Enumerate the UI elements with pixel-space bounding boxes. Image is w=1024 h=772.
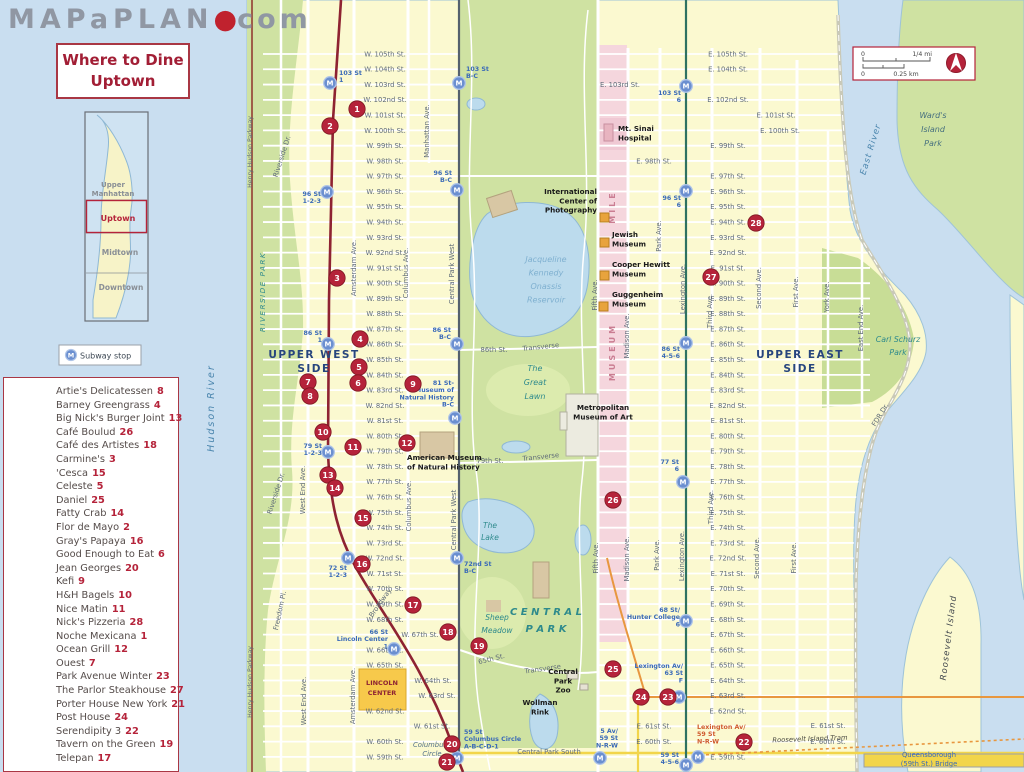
site-logo: MAPaPLAN●com [8,4,312,35]
map-title-line2: Uptown [60,71,186,92]
svg-text:W. 63rd St.: W. 63rd St. [418,692,455,700]
street-label: E. 100th St. [760,127,800,135]
svg-text:W. 95th St.: W. 95th St. [366,203,403,211]
landmark-label: MetropolitanMuseum of Art [573,403,633,421]
turtle-pond [502,441,530,453]
svg-text:Kennedy: Kennedy [529,269,564,278]
svg-text:20: 20 [446,740,458,749]
svg-text:(59th St.) Bridge: (59th St.) Bridge [901,760,958,768]
svg-text:1: 1 [339,77,343,84]
restaurant-item: Post House24 [56,711,178,725]
svg-text:B-C: B-C [442,402,454,409]
street-label: W. 64th St. [414,677,451,685]
svg-text:M: M [345,555,352,563]
svg-text:Museum: Museum [612,269,646,278]
restaurant-item: Tavern on the Green19 [56,738,178,752]
svg-text:Third Ave.: Third Ave. [707,490,715,525]
svg-text:21: 21 [441,758,453,767]
svg-text:W. 60th St.: W. 60th St. [366,738,403,746]
street-label: W. 75th St. [366,509,403,517]
svg-text:Hospital: Hospital [618,133,652,142]
svg-text:Lincoln Center: Lincoln Center [337,636,389,643]
street-label: W. 102nd St. [363,96,406,104]
street-label: W. 72nd St. [366,555,405,563]
subway-legend-label: Subway stop [80,352,131,361]
svg-text:M: M [680,479,687,487]
map-label: MUSEUM [608,323,617,381]
restaurant-marker: 27 [703,269,719,285]
svg-text:E. 85th St.: E. 85th St. [710,356,746,364]
svg-text:W. 71st St.: W. 71st St. [367,570,403,578]
restaurant-marker: 19 [471,638,487,654]
svg-text:B-C: B-C [440,177,452,184]
subway-stop-label: 96 St1-2-3 [302,191,321,205]
svg-text:M: M [454,187,461,195]
street-label: E. 95th St. [710,203,746,211]
street-label: E. 77th St. [710,478,746,486]
map-label: SIDE [783,363,816,375]
svg-text:59 St: 59 St [599,735,618,742]
restaurant-marker: 18 [440,624,456,640]
svg-text:E. 104th St.: E. 104th St. [708,66,748,74]
svg-text:Madison Ave.: Madison Ave. [623,313,631,358]
svg-text:American Museum: American Museum [407,453,482,462]
svg-text:M: M [68,352,74,360]
street-label: E. 101st St. [756,112,795,120]
restaurant-item: Good Enough to Eat6 [56,548,178,562]
svg-text:B-C: B-C [439,334,451,341]
logo-dot: ● [214,4,238,35]
svg-text:E. 86th St.: E. 86th St. [710,341,746,349]
svg-text:23: 23 [662,693,673,702]
street-label: E. 84th St. [710,371,746,379]
svg-text:28: 28 [750,219,762,228]
svg-text:25: 25 [607,665,619,674]
svg-text:Lawn: Lawn [525,392,546,401]
street-label: W. 74th St. [366,524,403,532]
subway-stop-label: 59 St4-5-6 [660,752,679,766]
svg-text:96 St: 96 St [433,170,452,177]
subway-stop-label: 5 Av/59 StN-R-W [596,728,619,749]
street-label: E. 105th St. [708,50,748,58]
svg-text:Hudson River: Hudson River [206,364,217,452]
restaurant-item: Celeste5 [56,480,178,494]
compass-icon [947,53,966,73]
svg-text:A-B-C-D-1: A-B-C-D-1 [464,743,499,750]
svg-text:E. 81st St.: E. 81st St. [711,417,746,425]
svg-text:Park: Park [924,139,942,148]
svg-text:E. 99th St.: E. 99th St. [710,142,746,150]
svg-text:6: 6 [675,466,680,473]
map-label: RIVERSIDE PARK [258,252,267,332]
street-label: W. 99th St. [366,142,403,150]
restaurant-marker: 16 [354,556,370,572]
map-label: York Ave. [823,282,831,314]
svg-text:18: 18 [442,628,454,637]
svg-text:Great: Great [524,378,547,387]
svg-text:E. 63rd St.: E. 63rd St. [710,692,746,700]
street-label: W. 92nd St. [366,249,405,257]
svg-text:66 St: 66 St [369,629,388,636]
restaurant-marker: 28 [748,215,764,231]
svg-text:UPPER EAST: UPPER EAST [756,349,844,361]
svg-text:Center of: Center of [559,196,598,205]
map-label: Columbus Ave. [402,248,410,299]
svg-text:59 St: 59 St [464,729,483,736]
map-label: Park Ave. [653,539,661,570]
restaurant-item: Ouest7 [56,657,178,671]
map-label: West End Ave. [299,466,307,515]
street-label: W. 105th St. [364,50,406,58]
street-label: E. 64th St. [710,677,746,685]
svg-text:Third Ave.: Third Ave. [706,294,714,329]
svg-text:Second Ave.: Second Ave. [755,267,763,309]
svg-text:F: F [679,677,683,684]
map-label: E. 61st St. [811,722,846,730]
svg-text:Jewish: Jewish [611,230,638,239]
restaurant-item: Serendipity 322 [56,725,178,739]
restaurant-item: Fatty Crab14 [56,507,178,521]
svg-text:E. 76th St.: E. 76th St. [710,494,746,502]
street-label: E. 72nd St. [709,555,746,563]
street-label: E. 65th St. [710,662,746,670]
hospital-icon [604,124,613,141]
svg-text:E. 70th St.: E. 70th St. [710,585,746,593]
street-label: E. 86th St. [710,341,746,349]
restaurant-item: Porter House New York21 [56,698,178,712]
street-label: E. 88th St. [710,310,746,318]
restaurant-marker: 25 [605,661,621,677]
svg-text:MUSEUM: MUSEUM [608,323,617,381]
restaurant-list: Artie's Delicatessen8Barney Greengrass4B… [3,377,179,772]
svg-text:Museum of: Museum of [415,387,454,394]
restaurant-marker: 17 [405,597,421,613]
svg-text:6: 6 [355,379,361,388]
svg-text:79 St: 79 St [303,443,322,450]
street-label: E. 94th St. [710,218,746,226]
svg-text:9: 9 [410,380,416,389]
svg-text:W. 97th St.: W. 97th St. [366,173,403,181]
svg-text:N-R-W: N-R-W [697,738,719,745]
map-label: LINCOLN [366,679,398,687]
svg-text:W. 81st St.: W. 81st St. [367,417,403,425]
svg-text:Amsterdam Ave.: Amsterdam Ave. [349,668,357,724]
street-label: W. 79th St. [366,448,403,456]
svg-text:4-5-6: 4-5-6 [662,353,681,360]
svg-text:W. 84th St.: W. 84th St. [366,371,403,379]
svg-text:Guggenheim: Guggenheim [612,290,663,299]
street-label: E. 78th St. [710,463,746,471]
svg-text:Central Park West: Central Park West [450,489,458,550]
svg-text:M: M [597,755,604,763]
subway-legend: M Subway stop [59,345,141,365]
svg-text:West End Ave.: West End Ave. [299,466,307,515]
svg-text:B-C: B-C [464,568,476,575]
svg-text:E. 72nd St.: E. 72nd St. [709,555,746,563]
street-label: E. 74th St. [710,524,746,532]
svg-text:W. 76th St.: W. 76th St. [366,494,403,502]
svg-text:E. 96th St.: E. 96th St. [710,188,746,196]
street-label: E. 68th St. [710,616,746,624]
svg-text:W. 74th St.: W. 74th St. [366,524,403,532]
map-label: Third Ave. [707,490,715,525]
landmark-label: American Museumof Natural History [407,453,482,471]
street-label: W. 89th St. [366,295,403,303]
map-label: Second Ave. [753,537,761,579]
svg-text:59 St: 59 St [697,731,716,738]
street-label: E. 93rd St. [710,234,746,242]
map-label: Henry Hudson Parkway [247,116,254,188]
svg-text:E. 61st St.: E. 61st St. [637,723,672,731]
inset-uptown: Uptown [101,214,136,223]
svg-text:M: M [325,341,332,349]
svg-text:B-C: B-C [466,73,478,80]
svg-text:17: 17 [407,601,418,610]
svg-text:W. 99th St.: W. 99th St. [366,142,403,150]
street-label: E. 81st St. [711,417,746,425]
svg-text:5: 5 [356,363,362,372]
svg-text:E. 95th St.: E. 95th St. [710,203,746,211]
svg-text:72nd St: 72nd St [464,561,492,568]
street-label: W. 73rd St. [366,539,403,547]
svg-text:Columbus Ave.: Columbus Ave. [402,248,410,299]
svg-text:M: M [456,80,463,88]
svg-text:M: M [683,762,690,770]
svg-text:Photography: Photography [545,206,597,215]
svg-text:Wollman: Wollman [523,698,558,707]
street-label: E. 70th St. [710,585,746,593]
svg-text:5 Av/: 5 Av/ [600,728,618,735]
map-label: Madison Ave. [623,313,631,358]
restaurant-marker: 1 [349,101,365,117]
svg-text:M: M [324,189,331,197]
restaurant-marker: 21 [439,754,455,770]
museum-icon [599,302,608,311]
restaurant-marker: 9 [405,376,421,392]
svg-text:E. 84th St.: E. 84th St. [710,371,746,379]
svg-text:68 St/: 68 St/ [659,607,681,614]
map-label: First Ave. [792,276,800,307]
svg-text:Cooper Hewitt: Cooper Hewitt [612,260,671,269]
svg-text:The: The [483,521,497,530]
svg-text:Lexington Av/: Lexington Av/ [634,663,683,670]
svg-text:SIDE: SIDE [783,363,816,375]
svg-text:E. 88th St.: E. 88th St. [710,310,746,318]
svg-text:E. 98th St.: E. 98th St. [636,157,672,165]
inset-upper-manhattan: Upper [101,181,125,189]
street-label: W. 60th St. [366,738,403,746]
svg-text:Madison Ave.: Madison Ave. [623,536,631,581]
svg-text:3: 3 [334,274,340,283]
street-label: W. 97th St. [366,173,403,181]
svg-text:86 St: 86 St [303,330,322,337]
subway-stop-label: 79 St1-2-3 [303,443,322,457]
svg-text:11: 11 [347,443,359,452]
svg-text:Ward's: Ward's [919,111,946,120]
svg-text:CENTER: CENTER [368,689,397,697]
map-label: Lexington Ave. [679,264,687,314]
svg-text:E. 80th St.: E. 80th St. [710,432,746,440]
landmark-label: Mt. SinaiHospital [618,124,654,142]
svg-text:W. 82nd St.: W. 82nd St. [366,402,405,410]
svg-text:E. 66th St.: E. 66th St. [710,646,746,654]
street-label: W. 82nd St. [366,402,405,410]
svg-text:Museum of Art: Museum of Art [573,412,633,421]
svg-text:W. 105th St.: W. 105th St. [364,50,406,58]
restaurant-marker: 23 [660,689,676,705]
svg-text:W. 61st St.: W. 61st St. [414,723,450,731]
street-label: E. 87th St. [710,325,746,333]
svg-text:Zoo: Zoo [555,686,570,695]
svg-text:Fifth Ave.: Fifth Ave. [591,279,599,310]
svg-text:RIVERSIDE PARK: RIVERSIDE PARK [258,252,267,332]
svg-text:The: The [528,364,543,373]
street-label: E. 59th St. [710,753,746,761]
svg-text:1-2-3: 1-2-3 [303,198,321,205]
restaurant-item: Ocean Grill12 [56,643,178,657]
svg-text:1: 1 [354,105,360,114]
scale-km-label: 0.25 km [893,71,918,78]
street-label: E. 66th St. [710,646,746,654]
svg-text:W. 67th St.: W. 67th St. [401,631,438,639]
street-label: W. 93rd St. [366,234,403,242]
restaurant-item: Nick's Pizzeria28 [56,616,178,630]
restaurant-item: Café Boulud26 [56,426,178,440]
scale-mi-zero: 0 [861,51,865,58]
restaurant-item: Café des Artistes18 [56,439,178,453]
street-label: W. 65th St. [366,662,403,670]
logo-main: MAPaPLAN [8,4,214,35]
street-label: W. 61st St. [414,723,450,731]
street-label: W. 94th St. [366,218,403,226]
svg-text:W. 87th St.: W. 87th St. [366,325,403,333]
svg-text:Amsterdam Ave.: Amsterdam Ave. [350,240,358,296]
street-label: E. 76th St. [710,494,746,502]
inset-overview-map: Upper Manhattan Uptown Midtown Downtown [85,112,148,321]
restaurant-marker: 15 [355,510,371,526]
svg-text:E. 59th St.: E. 59th St. [710,753,746,761]
svg-text:E. 83rd St.: E. 83rd St. [710,387,746,395]
svg-text:103 St: 103 St [339,70,362,77]
svg-text:W. 78th St.: W. 78th St. [366,463,403,471]
svg-text:W. 72nd St.: W. 72nd St. [366,555,405,563]
map-label: Lexington Ave. [678,531,686,581]
street-label: W. 96th St. [366,188,403,196]
svg-text:Lexington Ave.: Lexington Ave. [678,531,686,581]
conservatory-water [575,525,591,555]
map-label: First Ave. [790,542,798,573]
svg-text:E. 77th St.: E. 77th St. [710,478,746,486]
svg-text:W. 79th St.: W. 79th St. [366,448,403,456]
svg-text:E. 101st St.: E. 101st St. [756,112,795,120]
svg-text:E. 103rd St.: E. 103rd St. [600,81,640,89]
street-label: W. 67th St. [401,631,438,639]
map-label: Queensborough [902,751,956,759]
street-label: W. 78th St. [366,463,403,471]
street-label: E. 69th St. [710,600,746,608]
svg-text:59 St: 59 St [660,752,679,759]
svg-text:Henry Hudson Parkway: Henry Hudson Parkway [247,116,254,188]
street-label: W. 104th St. [364,66,406,74]
street-label: E. 67th St. [710,631,746,639]
map-label: Amsterdam Ave. [349,668,357,724]
svg-text:W. 102nd St.: W. 102nd St. [363,96,406,104]
svg-text:24: 24 [635,693,647,702]
restaurant-item: Jean Georges20 [56,562,178,576]
map-label: Madison Ave. [623,536,631,581]
subway-stop-label: 72 St1-2-3 [328,565,347,579]
svg-text:N-R-W: N-R-W [596,742,618,749]
map-label: 86th St. [481,346,508,354]
svg-text:22: 22 [738,738,749,747]
svg-text:M: M [454,341,461,349]
svg-text:W. 94th St.: W. 94th St. [366,218,403,226]
svg-text:12: 12 [401,439,412,448]
svg-text:M: M [391,646,398,654]
svg-text:M: M [683,188,690,196]
svg-text:East End Ave.: East End Ave. [857,305,865,352]
svg-text:Natural History: Natural History [400,394,454,401]
svg-text:LINCOLN: LINCOLN [366,679,398,687]
street-label: E. 96th St. [710,188,746,196]
restaurant-marker: 12 [399,435,415,451]
street-label: E. 97th St. [710,173,746,181]
svg-text:W. 93rd St.: W. 93rd St. [366,234,403,242]
svg-text:of Natural History: of Natural History [407,462,480,471]
svg-text:Rink: Rink [531,707,549,716]
svg-text:86 St: 86 St [661,346,680,353]
street-label: E. 73rd St. [710,539,746,547]
svg-text:Onassis: Onassis [531,282,562,291]
map-label: Columbus [413,741,447,749]
svg-text:SIDE: SIDE [297,363,330,375]
svg-text:15: 15 [357,514,369,523]
street-label: E. 60th St. [636,738,672,746]
map-label: Third Ave. [706,294,714,329]
svg-text:E. 71st St.: E. 71st St. [711,570,746,578]
svg-text:Museum: Museum [612,299,646,308]
svg-text:E. 62nd St.: E. 62nd St. [709,707,746,715]
map-label: Circle [422,750,441,758]
svg-text:Park Ave.: Park Ave. [653,539,661,570]
street-label: W. 101st St. [365,112,406,120]
map-label: SIDE [297,363,330,375]
svg-text:W. 64th St.: W. 64th St. [414,677,451,685]
svg-text:Metropolitan: Metropolitan [577,403,629,412]
svg-text:81 St-: 81 St- [433,380,455,387]
street-label: E. 61st St. [637,723,672,731]
svg-text:M: M [452,415,459,423]
restaurant-item: Big Nick's Burger Joint13 [56,412,178,426]
logo-tld: com [237,4,312,35]
svg-text:86th St.: 86th St. [481,346,508,354]
map-label: Central Park West [448,243,456,304]
svg-text:96 St: 96 St [662,195,681,202]
svg-text:W. 100th St.: W. 100th St. [364,127,406,135]
street-label: W. 80th St. [366,432,403,440]
restaurant-marker: 2 [322,118,338,134]
street-label: E. 71st St. [711,570,746,578]
svg-text:86 St: 86 St [432,327,451,334]
pool [467,98,485,110]
svg-text:Carl Schurz: Carl Schurz [876,335,921,344]
svg-text:E. 69th St.: E. 69th St. [710,600,746,608]
svg-text:Manhattan Ave.: Manhattan Ave. [423,104,431,157]
map-label: Central Park West [450,489,458,550]
street-label: W. 59th St. [366,753,403,761]
svg-text:C E N T R A L: C E N T R A L [510,607,582,618]
svg-text:Henry Hudson Parkway: Henry Hudson Parkway [247,646,254,718]
